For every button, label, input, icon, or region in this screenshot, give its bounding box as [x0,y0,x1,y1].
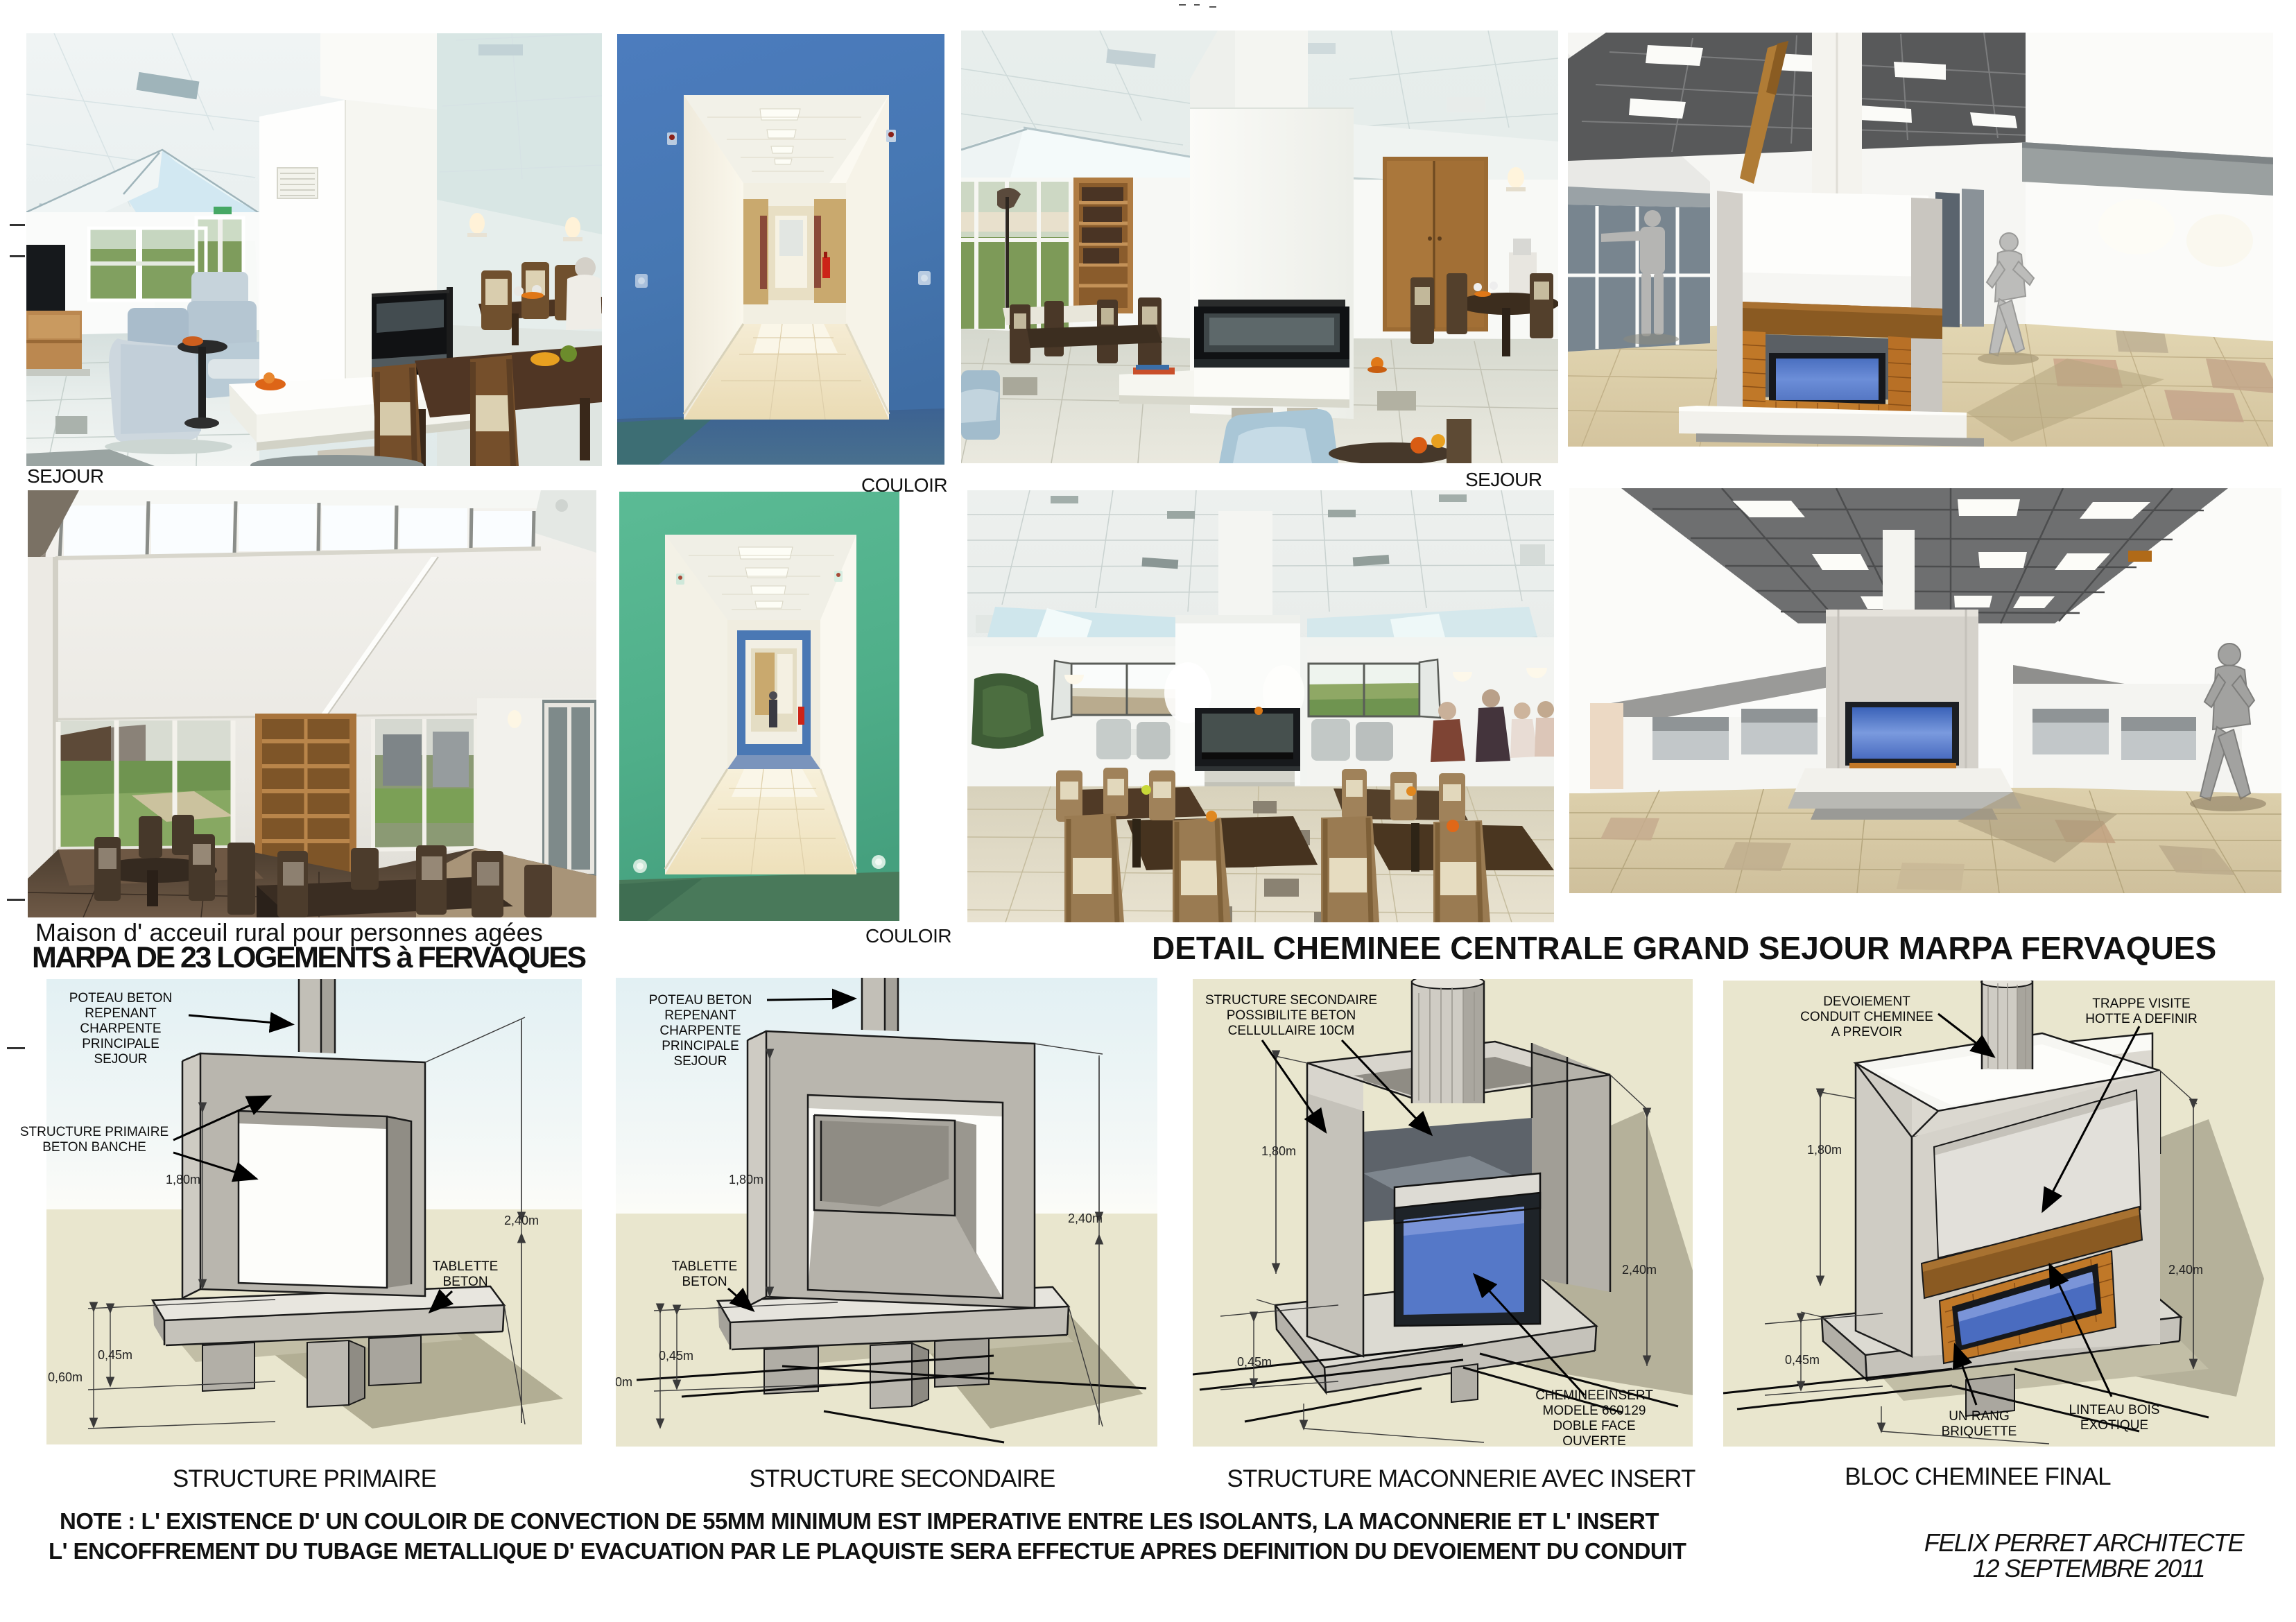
svg-text:0,60m: 0,60m [616,1375,632,1389]
svg-text:0,45m: 0,45m [659,1349,693,1363]
svg-text:0,45m: 0,45m [1785,1353,1820,1367]
svg-text:0,45m: 0,45m [1237,1355,1272,1369]
svg-text:1,80m: 1,80m [166,1173,200,1187]
svg-text:POSSIBILITE BETON: POSSIBILITE BETON [1227,1008,1356,1023]
svg-text:PRINCIPALE: PRINCIPALE [662,1039,739,1053]
svg-text:OUVERTE: OUVERTE [1562,1434,1626,1447]
svg-text:DEVOIEMENT: DEVOIEMENT [1823,994,1910,1009]
svg-text:MODELE 660129: MODELE 660129 [1543,1404,1646,1418]
svg-text:POTEAU BETON: POTEAU BETON [649,993,752,1008]
svg-text:CHEMINEEINSERT: CHEMINEEINSERT [1535,1388,1653,1403]
svg-text:2,40m: 2,40m [504,1214,539,1227]
svg-text:SEJOUR: SEJOUR [94,1052,147,1067]
svg-text:2,40m: 2,40m [1622,1263,1657,1277]
svg-text:EXOTIQUE: EXOTIQUE [2080,1418,2148,1433]
svg-text:1,80m: 1,80m [729,1173,763,1187]
svg-text:BETON: BETON [442,1275,487,1289]
svg-text:LINTEAU BOIS: LINTEAU BOIS [2069,1403,2160,1417]
svg-text:1,80m: 1,80m [1261,1144,1296,1158]
svg-text:REPENANT: REPENANT [85,1006,157,1021]
svg-text:CHARPENTE: CHARPENTE [80,1021,161,1036]
svg-text:0,45m: 0,45m [98,1348,132,1362]
svg-text:BRIQUETTE: BRIQUETTE [1942,1424,2017,1439]
svg-text:TABLETTE: TABLETTE [433,1259,499,1274]
svg-text:BETON: BETON [682,1275,727,1289]
svg-text:2,40m: 2,40m [1068,1211,1103,1225]
svg-text:STRUCTURE SECONDAIRE: STRUCTURE SECONDAIRE [1205,993,1377,1008]
svg-text:CONDUIT CHEMINEE: CONDUIT CHEMINEE [1800,1010,1933,1024]
svg-text:REPENANT: REPENANT [664,1008,736,1023]
svg-text:TRAPPE VISITE: TRAPPE VISITE [2092,997,2190,1011]
svg-text:POTEAU BETON: POTEAU BETON [69,991,173,1006]
svg-text:TABLETTE: TABLETTE [672,1259,738,1274]
svg-text:SEJOUR: SEJOUR [673,1054,727,1069]
svg-text:UN RANG: UN RANG [1949,1409,2010,1424]
svg-text:CELLULLAIRE 10CM: CELLULLAIRE 10CM [1228,1024,1355,1038]
svg-text:2,40m: 2,40m [2168,1263,2203,1277]
svg-text:DOBLE FACE: DOBLE FACE [1553,1419,1635,1433]
svg-text:HOTTE A DEFINIR: HOTTE A DEFINIR [2085,1012,2198,1026]
svg-text:PRINCIPALE: PRINCIPALE [82,1037,159,1051]
svg-text:1,80m: 1,80m [1807,1143,1842,1157]
svg-text:CHARPENTE: CHARPENTE [659,1024,741,1038]
svg-text:A PREVOIR: A PREVOIR [1831,1025,1902,1039]
svg-text:0,60m: 0,60m [48,1370,83,1384]
